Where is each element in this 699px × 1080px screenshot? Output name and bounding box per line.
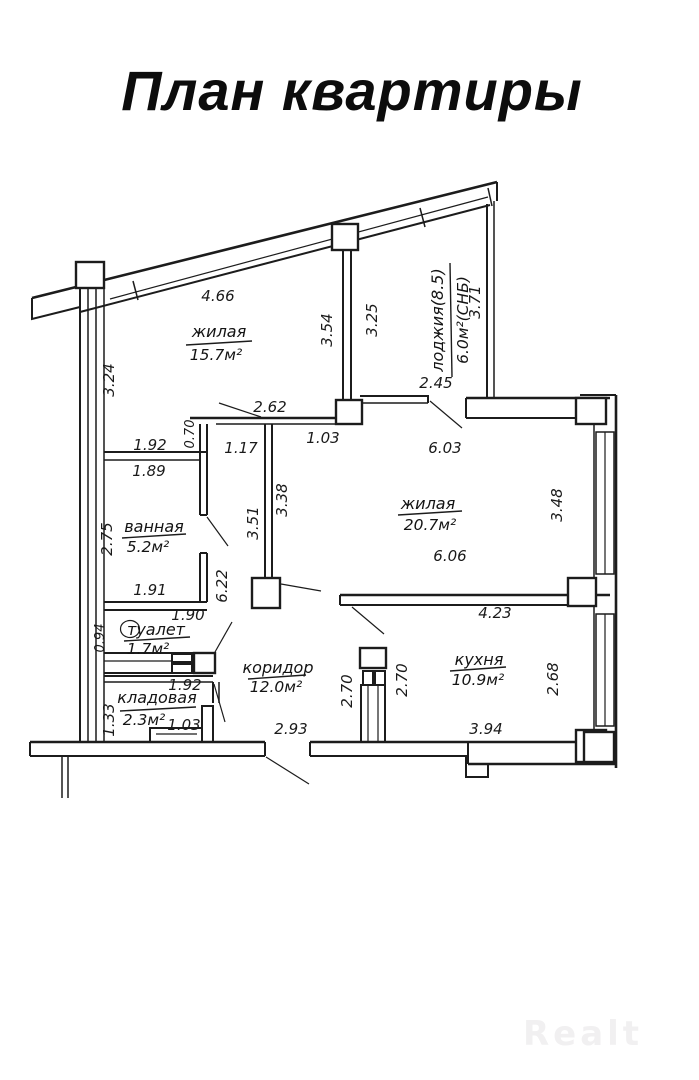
dim-0.94: 0.94 <box>93 624 108 653</box>
dim-1.03-storage: 1.03 <box>167 716 200 734</box>
room-kitchen-name: кухня <box>455 650 504 669</box>
dim-1.03-top: 1.03 <box>306 429 339 447</box>
dim-2.68: 2.68 <box>544 662 562 695</box>
wall-loggia-bottom <box>360 396 428 403</box>
pillar <box>76 262 104 288</box>
room-corridor-area: 12.0м² <box>250 678 302 696</box>
dim-2.70-left: 2.70 <box>338 674 356 707</box>
label-underline <box>450 263 452 377</box>
dim-3.24: 3.24 <box>100 363 118 396</box>
dim-2.62: 2.62 <box>253 398 286 416</box>
dim-2.93: 2.93 <box>274 720 307 738</box>
vent-block <box>172 654 192 662</box>
room-living1-name: жилая <box>191 322 247 341</box>
room-living2-area: 20.7м² <box>404 516 456 534</box>
pillar <box>336 400 362 424</box>
dim-2.70-right: 2.70 <box>393 663 411 696</box>
room-bathroom-name: ванная <box>124 517 184 536</box>
label-underline <box>186 341 252 345</box>
room-corridor-name: коридор <box>242 658 313 677</box>
dim-3.25: 3.25 <box>363 303 381 336</box>
wall-south-notch <box>466 756 488 777</box>
window-tick <box>420 208 425 227</box>
dim-1.90: 1.90 <box>171 606 204 624</box>
storage-door-post <box>202 706 213 742</box>
vent-block <box>172 664 192 673</box>
page-title: План квартиры <box>121 59 583 122</box>
pillar <box>252 578 280 608</box>
pillar <box>568 578 596 606</box>
door-swing-line <box>352 607 384 634</box>
door-swing-line <box>207 517 228 546</box>
dim-3.71: 3.71 <box>466 285 484 318</box>
dim-3.54: 3.54 <box>318 313 336 346</box>
vent-shaft-square <box>194 653 215 673</box>
dim-1.92-top: 1.92 <box>133 436 166 454</box>
room-bathroom-area: 5.2м² <box>127 538 170 556</box>
room-storage-area: 2.3м² <box>123 711 166 729</box>
door-swing-line <box>430 401 462 428</box>
dim-3.38: 3.38 <box>273 483 291 516</box>
room-living1-area: 15.7м² <box>190 346 242 364</box>
pillar <box>576 398 606 424</box>
dim-6.22: 6.22 <box>213 569 231 602</box>
dim-1.92-bottom: 1.92 <box>168 676 201 694</box>
pillar <box>584 732 614 762</box>
door-swing-line <box>215 622 232 652</box>
dim-3.48: 3.48 <box>548 488 566 521</box>
room-living2-name: жилая <box>400 494 456 513</box>
dim-1.17: 1.17 <box>224 439 258 457</box>
dim-2.45: 2.45 <box>419 374 452 392</box>
realt-watermark: Realt <box>523 1014 643 1054</box>
room-toilet-area: 1.7м² <box>127 640 170 658</box>
wall-diagonal-endcap <box>32 298 80 319</box>
entrance-door-swing <box>266 757 309 784</box>
vent-block <box>363 671 373 685</box>
door-swing-line <box>281 584 321 591</box>
dim-1.33: 1.33 <box>100 703 118 736</box>
dim-6.06: 6.06 <box>433 547 466 565</box>
dim-6.03: 6.03 <box>428 439 461 457</box>
room-loggia-label: лоджия(8.5) 6.0м²(СНБ) <box>428 263 472 377</box>
vent-block <box>375 671 385 685</box>
dim-0.70: 0.70 <box>183 420 198 449</box>
dim-4.66: 4.66 <box>201 287 234 305</box>
room-loggia-name: лоджия(8.5) <box>428 268 447 372</box>
dim-3.94: 3.94 <box>469 720 502 738</box>
room-kitchen-area: 10.9м² <box>452 671 504 689</box>
vent-shaft-square <box>360 648 386 668</box>
window-tick <box>488 188 492 206</box>
dim-4.23: 4.23 <box>478 604 511 622</box>
shaft-wall <box>361 685 385 742</box>
floor-plan-svg: План квартиры <box>0 0 699 1080</box>
dim-3.51: 3.51 <box>244 506 262 539</box>
dim-1.89: 1.89 <box>132 462 165 480</box>
dim-1.91: 1.91 <box>133 581 166 599</box>
pillar <box>332 224 358 250</box>
dim-2.75: 2.75 <box>98 522 116 555</box>
